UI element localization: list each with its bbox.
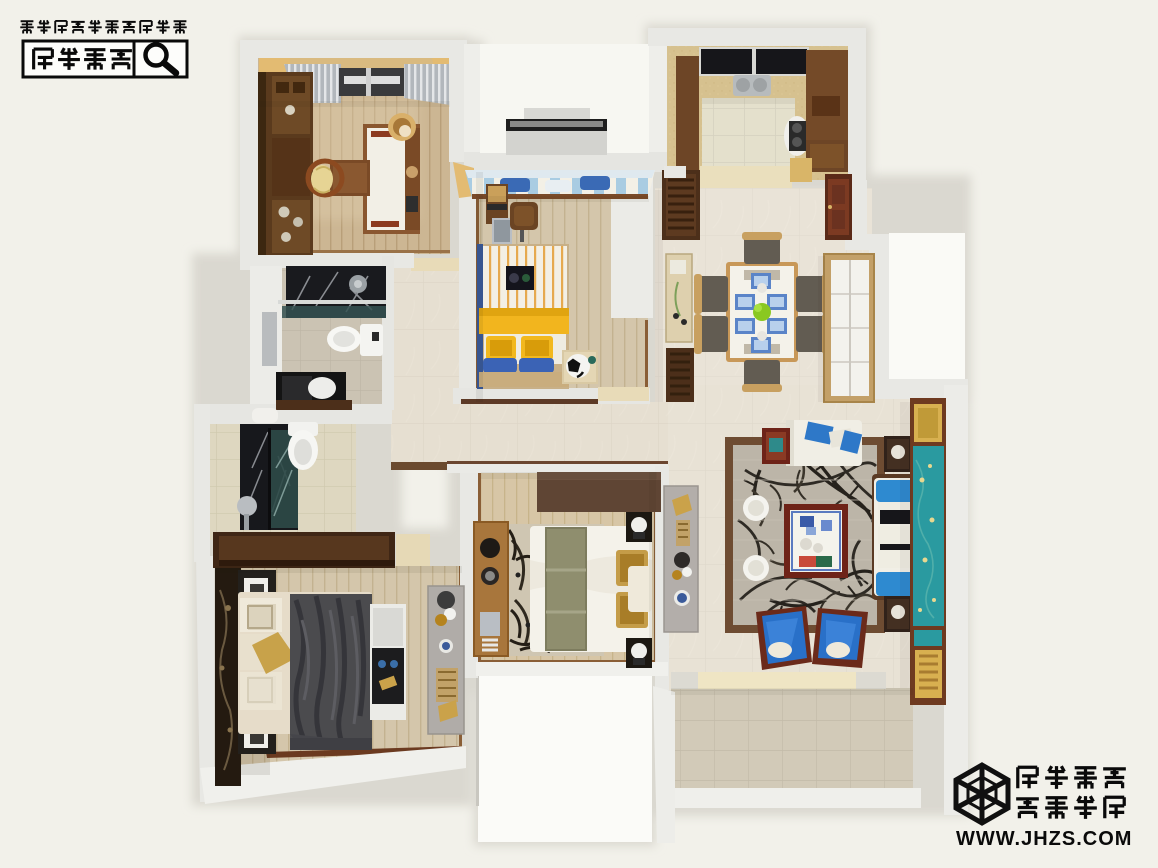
svg-text:WWW.JHZS.COM: WWW.JHZS.COM — [956, 828, 1132, 850]
